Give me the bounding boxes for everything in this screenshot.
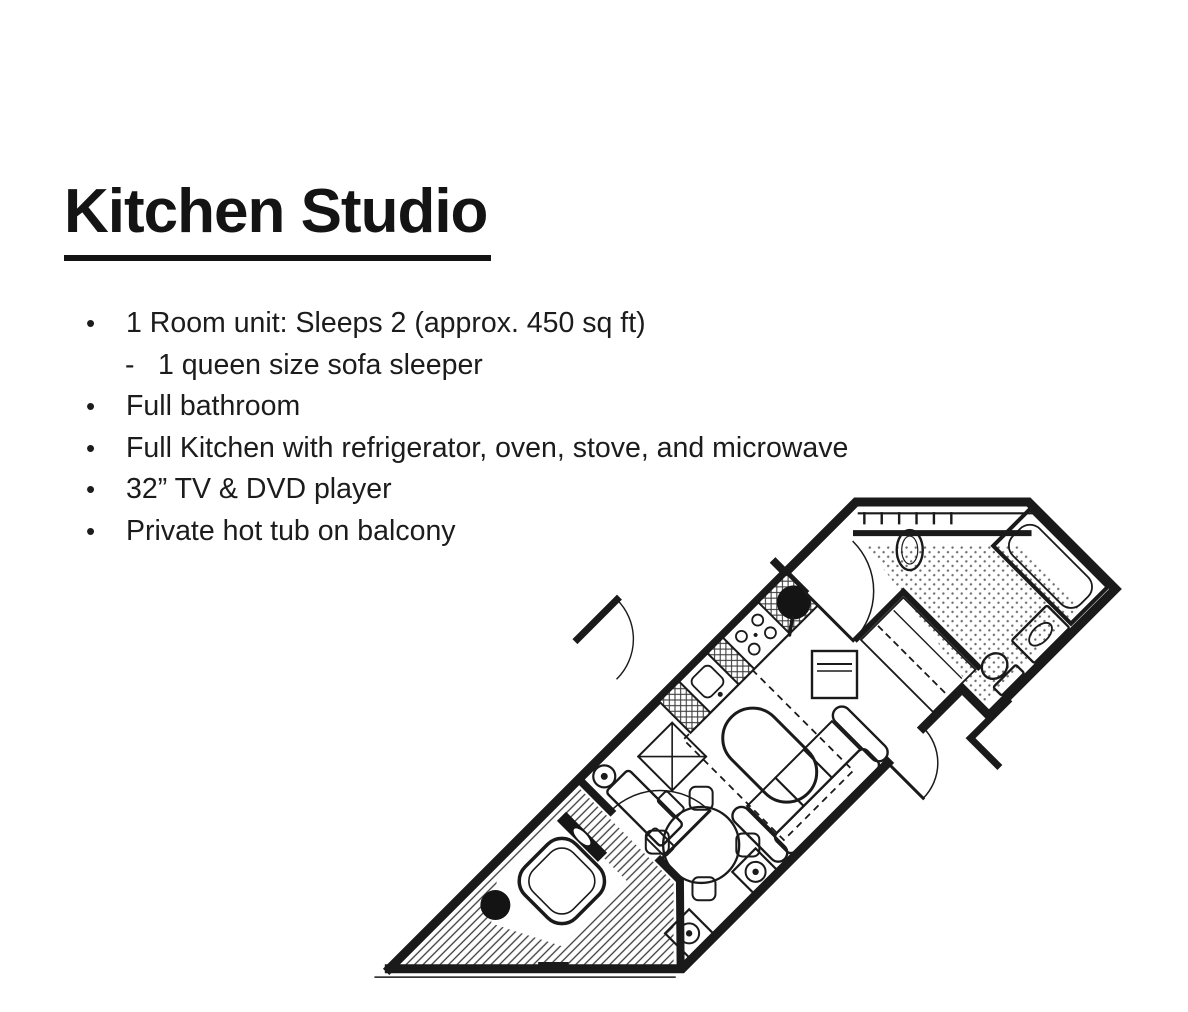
tv-stand	[812, 651, 857, 698]
refrigerator	[638, 723, 706, 791]
floor-plan	[0, 0, 1188, 1012]
entry-door	[888, 728, 959, 799]
brochure-page: Kitchen Studio • 1 Room unit: Sleeps 2 (…	[0, 0, 1188, 1012]
